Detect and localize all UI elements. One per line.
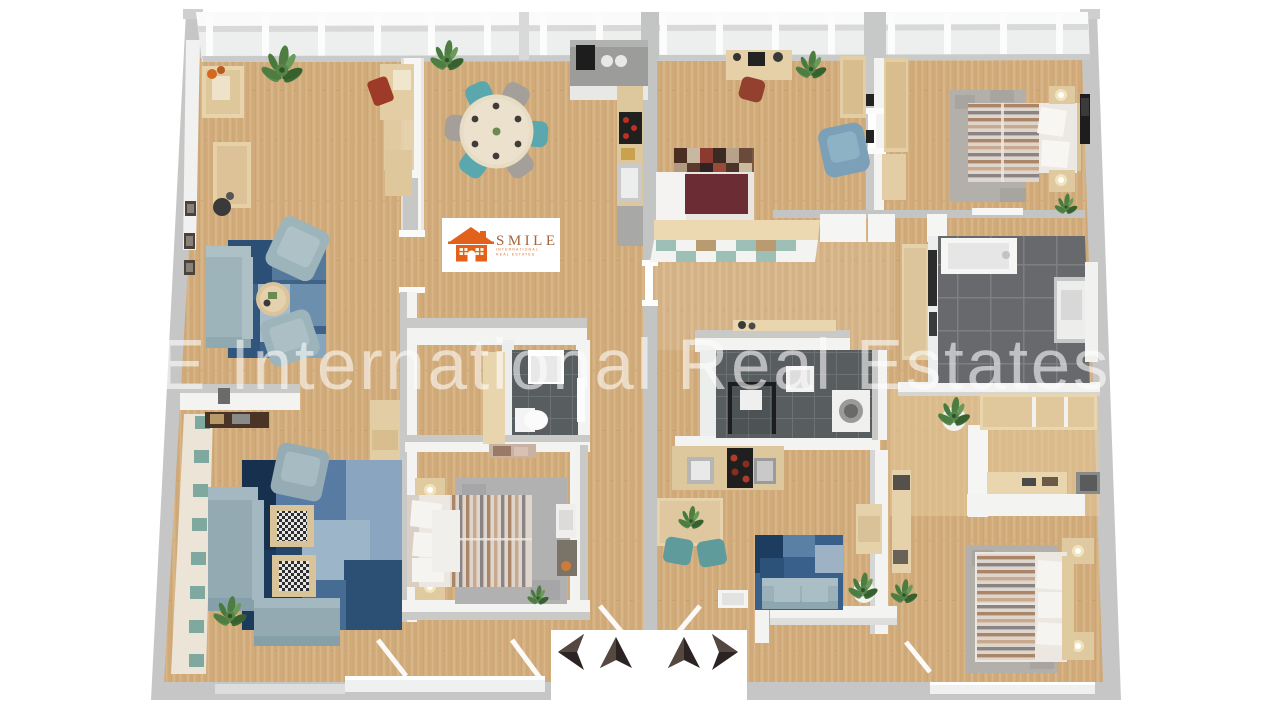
- svg-text:E International Real Estates: E International Real Estates: [158, 326, 1111, 405]
- svg-text:REAL ESTATES: REAL ESTATES: [496, 253, 535, 257]
- svg-text:INTERNATIONAL: INTERNATIONAL: [496, 248, 539, 252]
